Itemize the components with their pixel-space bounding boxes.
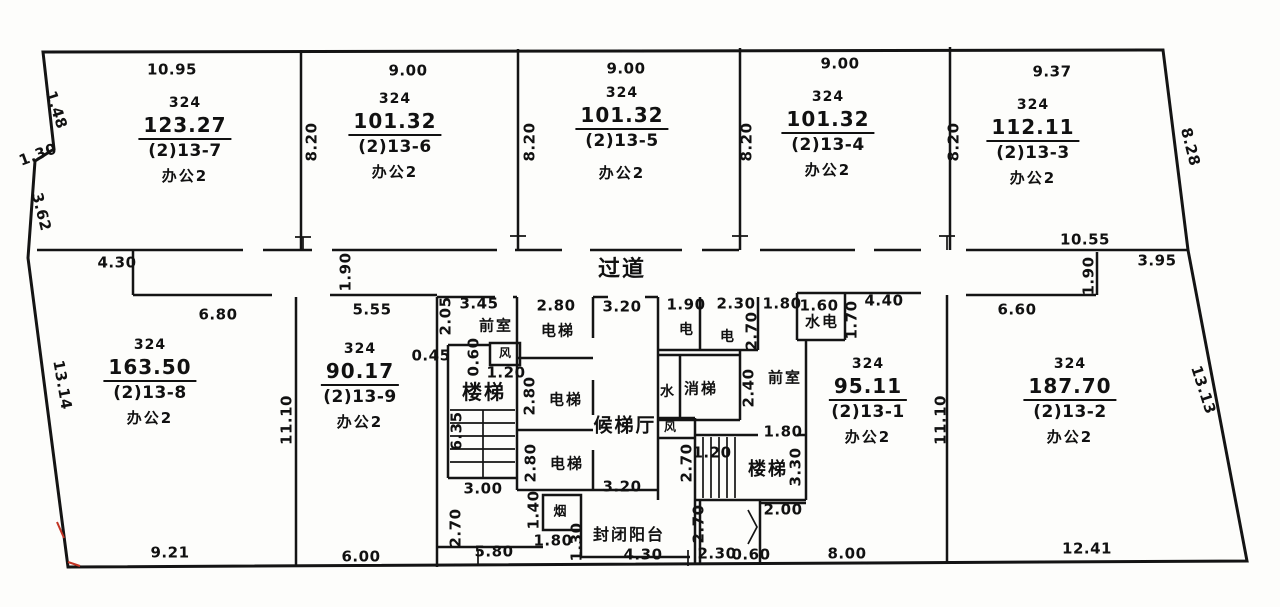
- dimension-label: 6.80: [198, 308, 237, 323]
- dimension-label: 1.20: [692, 446, 731, 461]
- room-label-13-8: 324 163.50 (2)13-8 办公2: [103, 338, 196, 426]
- dimension-label: 2.80: [523, 376, 538, 415]
- feature-label: 电梯: [550, 457, 584, 472]
- dimension-label: 1.30: [17, 141, 59, 168]
- room-area: 187.70: [1023, 374, 1116, 401]
- dimension-label: 10.95: [147, 63, 197, 78]
- room-use: 办公2: [575, 166, 668, 181]
- dimension-label: 2.70: [680, 443, 695, 482]
- feature-label: 电: [679, 323, 695, 337]
- dimension-label: 5.80: [474, 545, 513, 560]
- feature-label: 电梯: [541, 324, 575, 339]
- dimension-label: 2.70: [745, 311, 760, 350]
- dimension-label: 8.20: [523, 122, 538, 161]
- plot-number: 324: [575, 86, 668, 100]
- dimension-label: 3.30: [789, 447, 804, 486]
- plot-number: 324: [781, 90, 874, 104]
- feature-label: 电: [720, 330, 736, 344]
- room-label-13-7: 324 123.27 (2)13-7 办公2: [138, 96, 231, 184]
- dimension-label: 1.80: [762, 297, 801, 312]
- dimension-label: 13.14: [50, 359, 73, 411]
- room-label-13-9: 324 90.17 (2)13-9 办公2: [321, 342, 399, 430]
- dimension-label: 2.05: [439, 296, 454, 335]
- dimension-label: 0.60: [467, 337, 482, 376]
- dimension-label: 2.70: [449, 508, 464, 547]
- dimension-label: 2.80: [536, 299, 575, 314]
- dimension-label: 2.80: [524, 443, 539, 482]
- room-use: 办公2: [348, 165, 441, 180]
- room-unit: (2)13-1: [829, 404, 907, 421]
- dimension-label: 2.40: [742, 368, 757, 407]
- dimension-label: 1.40: [527, 490, 542, 529]
- room-label-13-3: 324 112.11 (2)13-3 办公2: [986, 98, 1079, 186]
- feature-label: 候梯厅: [593, 417, 656, 436]
- room-area: 112.11: [986, 115, 1079, 142]
- plot-number: 324: [1023, 357, 1116, 371]
- room-use: 办公2: [829, 430, 907, 445]
- dimension-label: 4.30: [97, 256, 136, 271]
- dimension-label: 2.00: [763, 503, 802, 518]
- room-label-13-4: 324 101.32 (2)13-4 办公2: [781, 90, 874, 178]
- dimension-label: 2.30: [716, 297, 755, 312]
- dimension-label: 13.13: [1188, 364, 1218, 416]
- room-area: 95.11: [829, 374, 907, 401]
- room-area: 101.32: [575, 103, 668, 130]
- feature-label: 过道: [598, 259, 646, 281]
- plot-number: 324: [829, 357, 907, 371]
- feature-label: 消梯: [684, 382, 718, 397]
- feature-label: 风: [499, 347, 513, 359]
- room-unit: (2)13-7: [138, 143, 231, 160]
- room-label-13-1: 324 95.11 (2)13-1 办公2: [829, 357, 907, 445]
- dimension-label: 8.28: [1178, 126, 1202, 167]
- feature-label: 楼梯: [748, 461, 788, 479]
- dimension-label: 9.00: [820, 57, 859, 72]
- dimension-label: 3.20: [602, 480, 641, 495]
- room-use: 办公2: [781, 163, 874, 178]
- room-use: 办公2: [138, 169, 231, 184]
- dimension-label: 1.48: [43, 89, 69, 131]
- dimension-label: 1.90: [1082, 256, 1097, 295]
- dimension-label: 8.20: [305, 122, 320, 161]
- room-use: 办公2: [986, 171, 1079, 186]
- dimension-label: 9.21: [150, 546, 189, 561]
- plot-number: 324: [986, 98, 1079, 112]
- room-label-13-6: 324 101.32 (2)13-6 办公2: [348, 92, 441, 180]
- dimension-label: 8.20: [947, 122, 962, 161]
- room-area: 163.50: [103, 355, 196, 382]
- dimension-label: 3.00: [463, 482, 502, 497]
- feature-label: 前室: [768, 371, 802, 386]
- dimension-label: 1.60: [799, 299, 838, 314]
- dimension-label: 1.80: [763, 425, 802, 440]
- plot-number: 324: [321, 342, 399, 356]
- feature-label: 水: [660, 385, 676, 399]
- feature-label: 封闭阳台: [593, 527, 665, 543]
- dimension-label: 9.00: [606, 62, 645, 77]
- room-label-13-2: 324 187.70 (2)13-2 办公2: [1023, 357, 1116, 445]
- dimension-label: 0.60: [731, 548, 770, 563]
- room-unit: (2)13-3: [986, 145, 1079, 162]
- plot-number: 324: [348, 92, 441, 106]
- dimension-label: 6.60: [997, 303, 1036, 318]
- dimension-label: 3.45: [459, 297, 498, 312]
- room-use: 办公2: [321, 415, 399, 430]
- dimension-label: 11.10: [280, 395, 295, 445]
- dimension-label: 6.35: [450, 411, 465, 450]
- room-label-13-5: 324 101.32 (2)13-5 办公2: [575, 86, 668, 181]
- room-area: 101.32: [781, 107, 874, 134]
- room-use: 办公2: [103, 411, 196, 426]
- dimension-label: 6.00: [341, 550, 380, 565]
- dimension-label: 3.20: [602, 300, 641, 315]
- room-unit: (2)13-6: [348, 139, 441, 156]
- dimension-label: 11.10: [934, 395, 949, 445]
- dimension-label: 4.30: [623, 548, 662, 563]
- dimension-label: 1.70: [845, 300, 860, 339]
- dimension-label: 5.55: [352, 303, 391, 318]
- dimension-label: 1.30: [570, 522, 585, 561]
- plot-number: 324: [103, 338, 196, 352]
- room-unit: (2)13-2: [1023, 404, 1116, 421]
- room-unit: (2)13-5: [575, 133, 668, 150]
- feature-label: 水电: [805, 315, 839, 330]
- dimension-label: 8.00: [827, 547, 866, 562]
- dimension-label: 10.55: [1060, 233, 1110, 248]
- plot-number: 324: [138, 96, 231, 110]
- dimension-label: 0.45: [411, 349, 450, 364]
- dimension-label: 3.62: [29, 191, 53, 232]
- room-area: 101.32: [348, 109, 441, 136]
- feature-label: 烟: [553, 506, 568, 519]
- dimension-label: 9.37: [1032, 65, 1071, 80]
- room-unit: (2)13-4: [781, 137, 874, 154]
- feature-label: 电梯: [549, 393, 583, 408]
- floor-plan: 10.959.009.009.009.371.481.303.6213.148.…: [0, 0, 1280, 607]
- dimension-label: 3.95: [1137, 254, 1176, 269]
- room-unit: (2)13-9: [321, 389, 399, 406]
- dimension-label: 8.20: [740, 122, 755, 161]
- dimension-label: 1.90: [339, 252, 354, 291]
- feature-label: 前室: [479, 319, 513, 334]
- dimension-label: 4.40: [864, 294, 903, 309]
- room-unit: (2)13-8: [103, 385, 196, 402]
- dimension-label: 9.00: [388, 64, 427, 79]
- room-use: 办公2: [1023, 430, 1116, 445]
- feature-label: 楼梯: [462, 382, 506, 402]
- dimension-label: 12.41: [1062, 542, 1112, 557]
- room-area: 123.27: [138, 113, 231, 140]
- dimension-label: 2.70: [692, 504, 707, 543]
- dimension-label: 1.90: [666, 298, 705, 313]
- room-area: 90.17: [321, 359, 399, 386]
- feature-label: 风: [664, 421, 678, 433]
